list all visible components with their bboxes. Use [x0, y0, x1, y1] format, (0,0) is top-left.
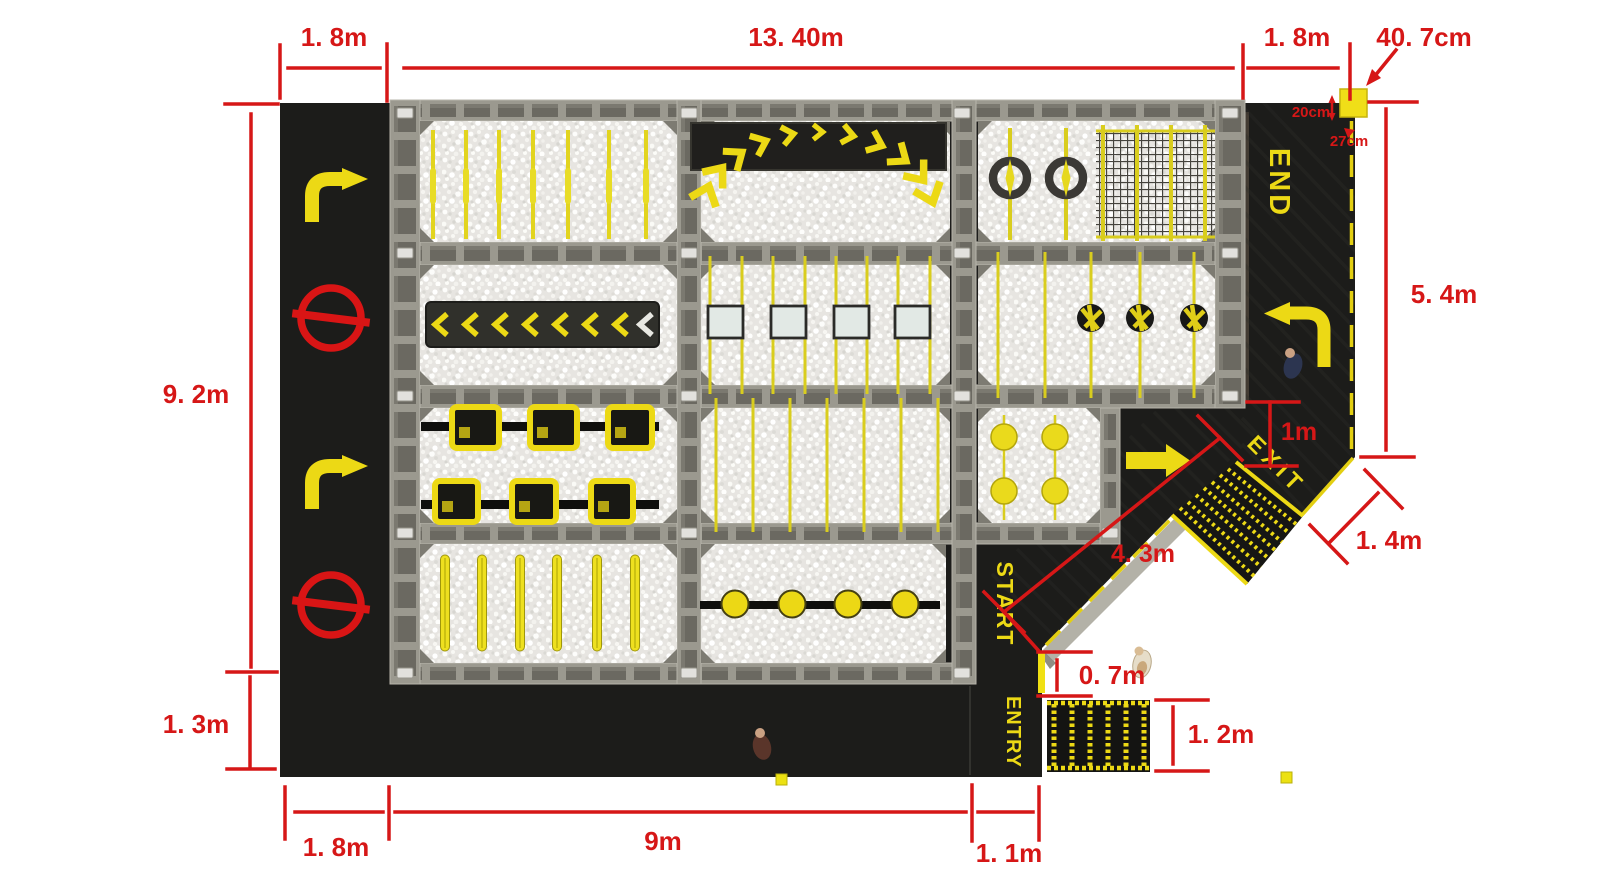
svg-text:1. 8m: 1. 8m [301, 22, 368, 52]
svg-text:1. 4m: 1. 4m [1356, 525, 1423, 555]
svg-text:27cm: 27cm [1330, 133, 1368, 150]
svg-text:9. 2m: 9. 2m [163, 379, 230, 409]
svg-text:0. 7m: 0. 7m [1079, 660, 1146, 690]
svg-text:13. 40m: 13. 40m [748, 22, 843, 52]
svg-text:1. 1m: 1. 1m [976, 838, 1043, 868]
svg-text:ENTRY: ENTRY [1002, 696, 1024, 768]
svg-text:20cm: 20cm [1292, 104, 1330, 121]
svg-text:9m: 9m [644, 826, 682, 856]
svg-text:END: END [1263, 148, 1295, 218]
svg-text:1. 3m: 1. 3m [163, 709, 230, 739]
svg-text:5. 4m: 5. 4m [1411, 279, 1478, 309]
svg-text:1. 8m: 1. 8m [1264, 22, 1331, 52]
svg-text:1. 8m: 1. 8m [303, 832, 370, 862]
svg-text:1. 2m: 1. 2m [1188, 719, 1255, 749]
svg-text:40. 7cm: 40. 7cm [1376, 22, 1471, 52]
svg-text:4. 3m: 4. 3m [1111, 540, 1175, 568]
svg-text:1m: 1m [1281, 418, 1317, 446]
